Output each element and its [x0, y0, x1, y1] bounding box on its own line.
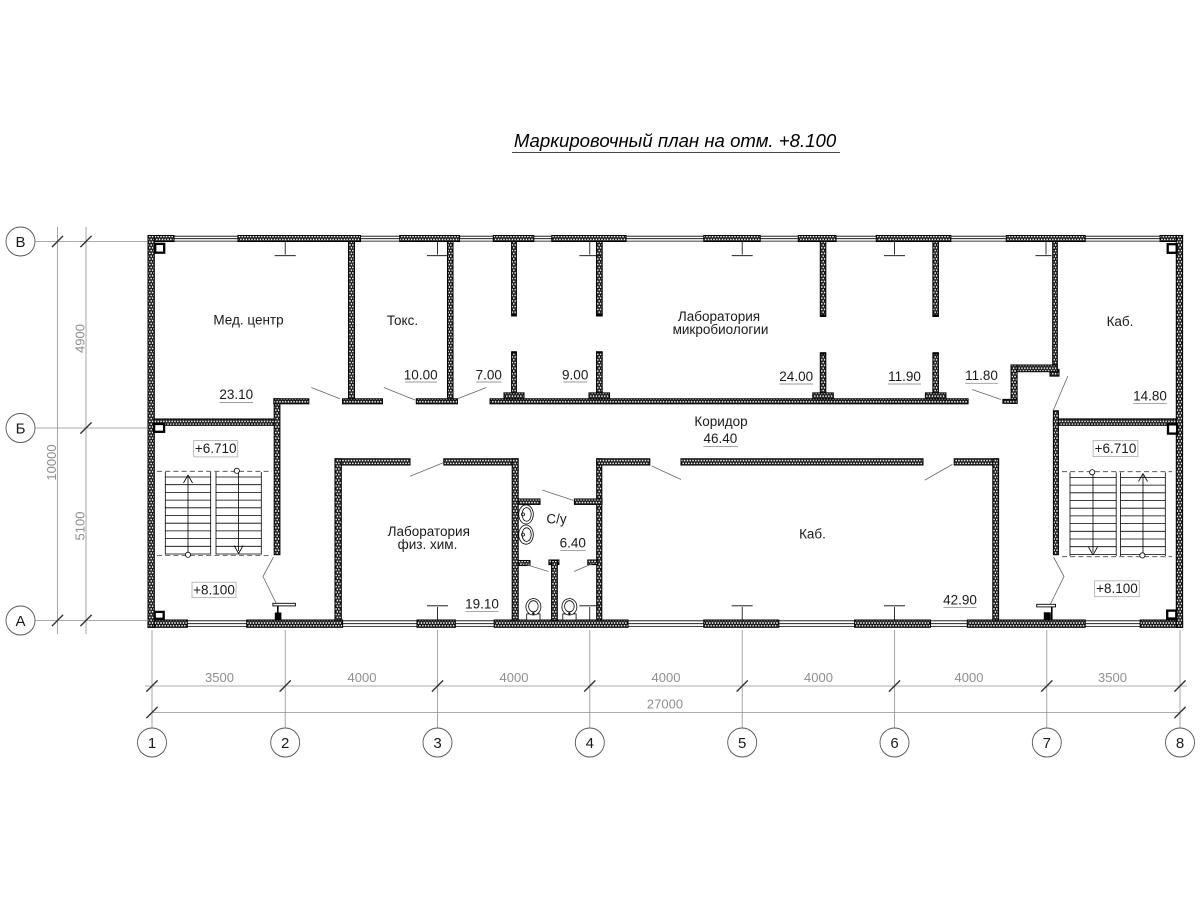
svg-text:4900: 4900 — [73, 324, 88, 353]
svg-text:9.00: 9.00 — [562, 367, 588, 382]
svg-text:23.10: 23.10 — [219, 387, 253, 402]
svg-text:Маркировочный план на отм. +8.: Маркировочный план на отм. +8.100 — [514, 130, 837, 151]
svg-text:42.90: 42.90 — [943, 592, 977, 607]
svg-text:Токс.: Токс. — [387, 313, 418, 328]
svg-text:+8.100: +8.100 — [1096, 581, 1138, 596]
svg-text:4000: 4000 — [348, 670, 377, 685]
svg-text:Б: Б — [16, 421, 26, 438]
svg-text:11.80: 11.80 — [965, 368, 998, 383]
svg-text:2: 2 — [281, 735, 289, 752]
svg-text:6.40: 6.40 — [560, 536, 586, 551]
svg-text:24.00: 24.00 — [779, 369, 813, 384]
svg-text:Мед. центр: Мед. центр — [213, 313, 283, 328]
svg-text:физ. хим.: физ. хим. — [398, 537, 458, 552]
svg-text:19.10: 19.10 — [465, 596, 499, 611]
svg-text:1: 1 — [148, 735, 156, 752]
svg-text:В: В — [15, 234, 25, 251]
svg-text:4000: 4000 — [955, 670, 984, 685]
svg-text:6: 6 — [890, 735, 898, 752]
svg-text:7.00: 7.00 — [476, 367, 502, 382]
svg-text:4: 4 — [586, 735, 594, 752]
svg-text:Коридор: Коридор — [694, 414, 747, 429]
svg-text:С/у: С/у — [546, 511, 567, 526]
svg-text:Каб.: Каб. — [1107, 314, 1134, 329]
svg-text:10000: 10000 — [44, 444, 59, 480]
svg-text:11.90: 11.90 — [888, 369, 921, 384]
svg-text:3500: 3500 — [205, 670, 234, 685]
svg-text:4000: 4000 — [804, 670, 833, 685]
svg-text:14.80: 14.80 — [1133, 389, 1167, 404]
svg-text:+8.100: +8.100 — [193, 582, 235, 597]
svg-text:10.00: 10.00 — [404, 367, 438, 382]
svg-text:микробиологии: микробиологии — [673, 322, 769, 337]
svg-text:Каб.: Каб. — [799, 527, 826, 542]
svg-text:27000: 27000 — [647, 697, 683, 712]
svg-text:4000: 4000 — [500, 670, 529, 685]
svg-text:+6.710: +6.710 — [195, 441, 237, 456]
svg-text:3500: 3500 — [1098, 670, 1127, 685]
svg-text:+6.710: +6.710 — [1095, 441, 1137, 456]
svg-text:8: 8 — [1176, 735, 1184, 752]
svg-text:3: 3 — [433, 735, 441, 752]
svg-text:А: А — [15, 613, 25, 630]
svg-text:4000: 4000 — [652, 670, 681, 685]
svg-text:5100: 5100 — [73, 512, 88, 541]
svg-text:5: 5 — [738, 735, 746, 752]
svg-text:46.40: 46.40 — [704, 431, 738, 446]
svg-text:7: 7 — [1043, 735, 1051, 752]
